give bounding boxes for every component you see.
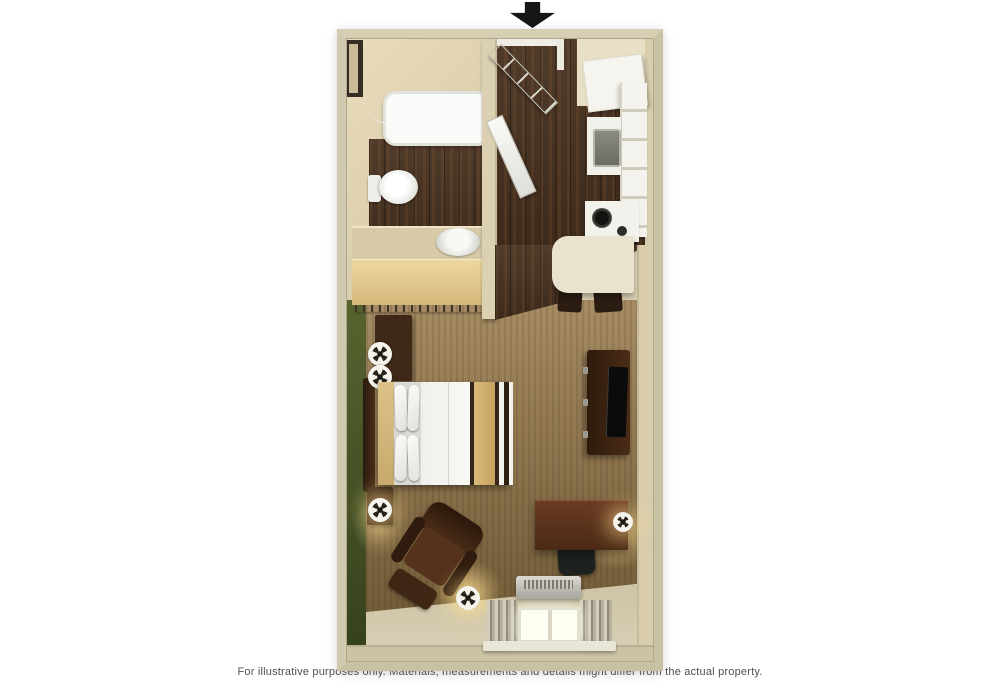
duvet: [420, 382, 471, 485]
window-mullion: [548, 610, 552, 640]
stove-burner-large: [593, 209, 611, 227]
bed-runner: [474, 382, 495, 485]
pillow: [407, 385, 420, 431]
bed: [378, 382, 509, 485]
window: [518, 607, 580, 643]
mainroom-right-wall: [637, 245, 656, 662]
tv-stand-knob: [583, 431, 588, 438]
closet-shelf: [352, 259, 483, 305]
floor-lamp: [456, 586, 480, 610]
pillow: [394, 435, 408, 481]
window-sill: [483, 641, 616, 651]
floorplan: [337, 29, 663, 671]
toilet-bowl: [379, 170, 418, 204]
entrance-arrow-icon: [510, 2, 555, 28]
tv-stand-knob: [583, 399, 588, 406]
hvac-unit: [516, 576, 581, 599]
floorplan-page: For illustrative purposes only. Material…: [0, 0, 1000, 700]
desk-lamp: [613, 512, 633, 532]
bed-foot-frame: [504, 382, 509, 485]
curtain-left: [487, 600, 518, 643]
disclaimer-text: For illustrative purposes only. Material…: [0, 666, 1000, 678]
headboard-frame: [363, 378, 375, 492]
dining-table: [552, 236, 634, 293]
kitchen-sink: [593, 129, 621, 167]
tv-stand-knob: [583, 367, 588, 374]
pillow: [394, 385, 408, 431]
stove-burner-small: [617, 226, 627, 236]
sink-basin: [436, 228, 480, 256]
niche-shelf: [349, 44, 358, 93]
television: [606, 367, 628, 438]
duvet-fold: [448, 382, 449, 485]
curtain-right: [580, 600, 612, 643]
pillow: [407, 435, 420, 481]
divider-wall: [482, 38, 497, 319]
hvac-grille: [524, 580, 573, 589]
table-lamp-1: [368, 342, 392, 366]
headboard-panel: [378, 382, 394, 485]
entry-door-jamb: [557, 38, 564, 70]
closet-rod: [355, 305, 483, 312]
entry-door-lintel: [497, 38, 561, 46]
